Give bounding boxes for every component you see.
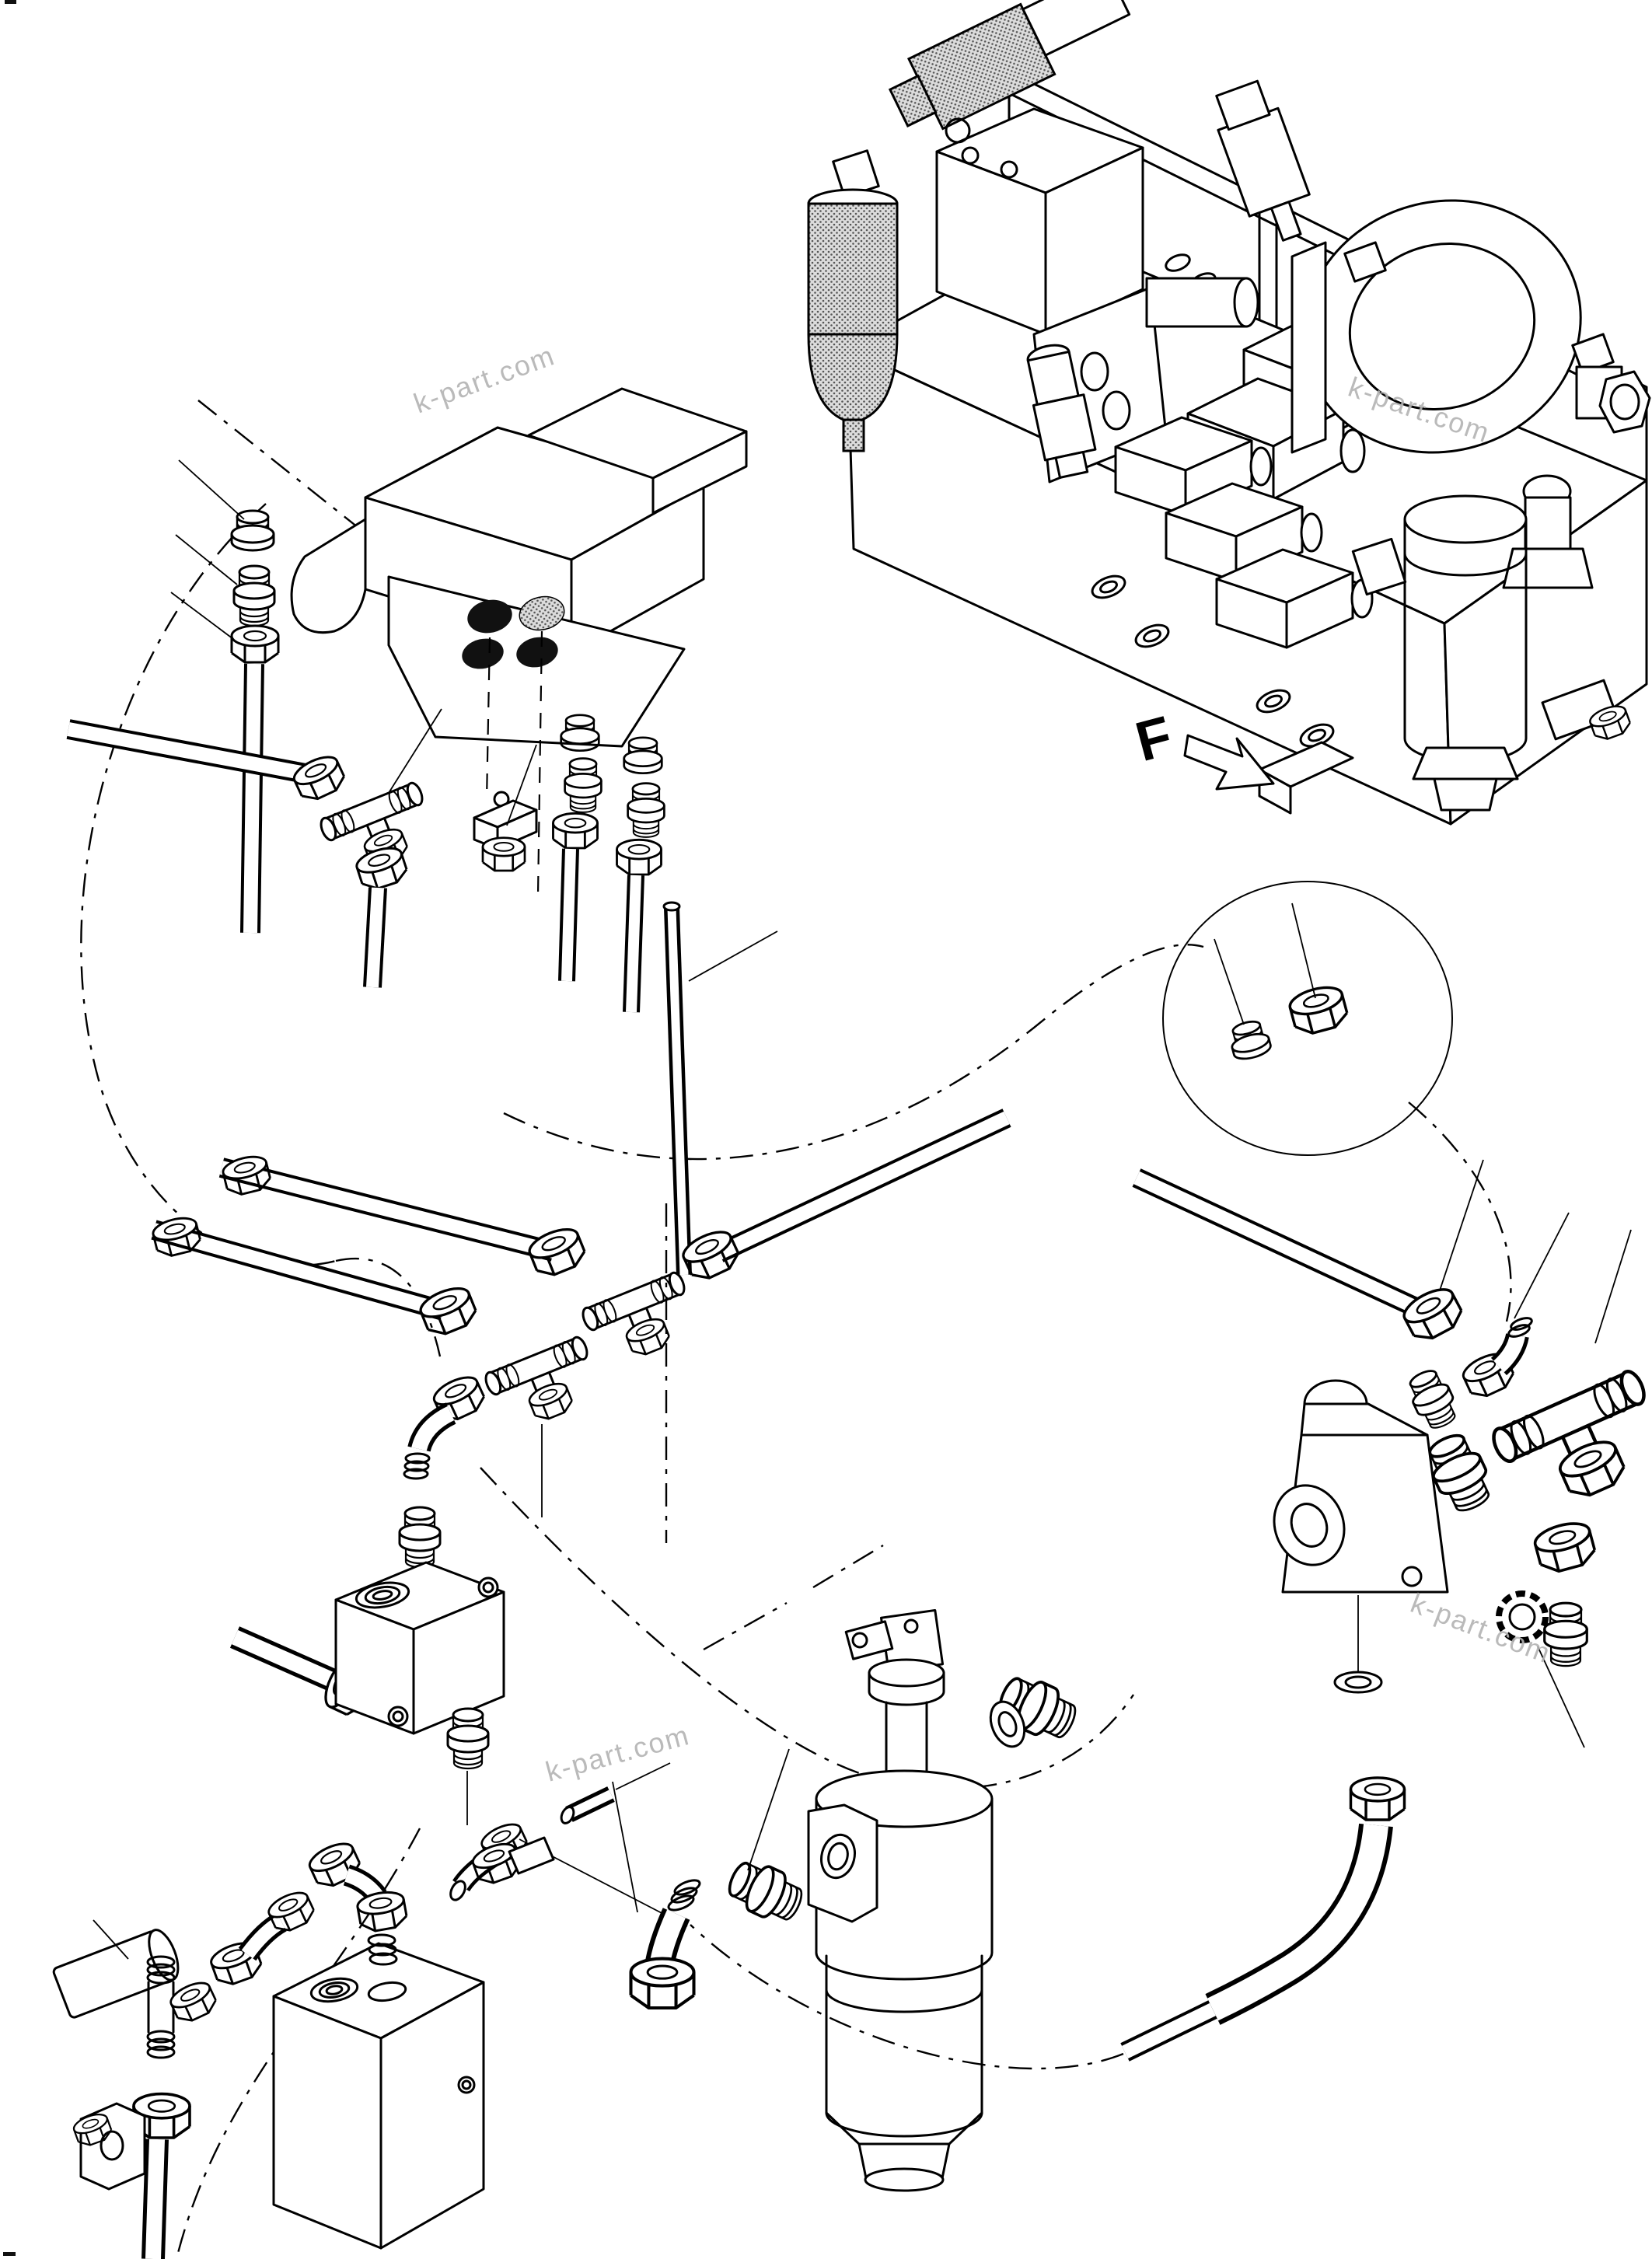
direction-arrow-icon: [1185, 735, 1273, 789]
elbow-fitting: [208, 1888, 318, 1988]
relief-valve: [1263, 1381, 1448, 1692]
hose-end-nut: [526, 1224, 589, 1280]
manifold-block-left: [274, 1996, 381, 2248]
filter-collar-ring: [869, 1660, 944, 1705]
watermark-text: k-part.com: [410, 339, 560, 420]
hose-end-nut: [417, 1283, 480, 1339]
tee-fitting-large: [1490, 1368, 1652, 1522]
side-bracket: [72, 2104, 145, 2189]
detail-cap-nut: [1287, 983, 1350, 1037]
hose-end-nut: [290, 752, 348, 805]
elbow-fitting: [404, 1372, 488, 1479]
elbow-hose-assembly: [1125, 1778, 1405, 2052]
filter-mount-tab: [809, 1805, 877, 1922]
plug-fitting: [624, 738, 662, 773]
straight-stud-fitting: [1545, 1603, 1587, 1666]
oil-filter-assembly: [809, 1610, 1082, 2191]
detail-plug-fitting: [1227, 1018, 1273, 1062]
bottom-left-manifold: [52, 1838, 554, 2259]
direction-label: F: [1130, 705, 1179, 774]
hose-end-nut: [1399, 1283, 1466, 1345]
elbow-fitting-large: [631, 1877, 702, 2008]
watermark-text: k-part.com: [542, 1719, 693, 1788]
filter-canister: [826, 1956, 982, 2191]
compression-fitting: [448, 1709, 488, 1768]
parts-diagram-canvas: F: [0, 0, 1652, 2259]
center-hose-cluster: [151, 1118, 1007, 1567]
inline-orifice-valve: [474, 792, 536, 871]
elbow-fitting: [1459, 1316, 1533, 1402]
swivel-nut: [1532, 1518, 1598, 1575]
registration-marks: [3, 0, 16, 2256]
hose-end-nut: [554, 813, 598, 848]
hose-end-nut: [1351, 1778, 1405, 1820]
hose-end-nut: [232, 626, 278, 662]
compression-fitting: [400, 1507, 440, 1567]
detail-circle-callout: [1163, 882, 1452, 1155]
hose-end-nut: [354, 843, 410, 892]
hose-end-nut: [617, 840, 662, 875]
tee-fitting: [580, 1271, 703, 1371]
pump-skid-assembly: [809, 0, 1650, 824]
nipple-fitting: [1403, 1366, 1462, 1433]
tee-fitting: [483, 1335, 606, 1436]
corner-mark-top-left: [5, 0, 16, 4]
nipple-fitting: [628, 784, 665, 837]
parts-diagram-page: F: [0, 0, 1652, 2259]
socket-plug: [479, 1578, 498, 1597]
socket-plug: [389, 1707, 407, 1726]
plug-fitting: [232, 511, 274, 550]
hex-nut-fitting: [167, 1978, 219, 2026]
right-fitting-group: [1137, 1160, 1652, 1747]
valve-mount-bracket: [292, 519, 365, 633]
nipple-fitting: [234, 566, 274, 626]
straight-coupling: [723, 1854, 809, 1929]
nipple-fitting: [565, 759, 602, 812]
bottom-center-fittings: [613, 1749, 809, 2008]
solenoid-valve-vertical: [1207, 78, 1322, 249]
corner-mark-bottom-left: [3, 2252, 16, 2256]
steel-tube: [664, 903, 777, 1275]
